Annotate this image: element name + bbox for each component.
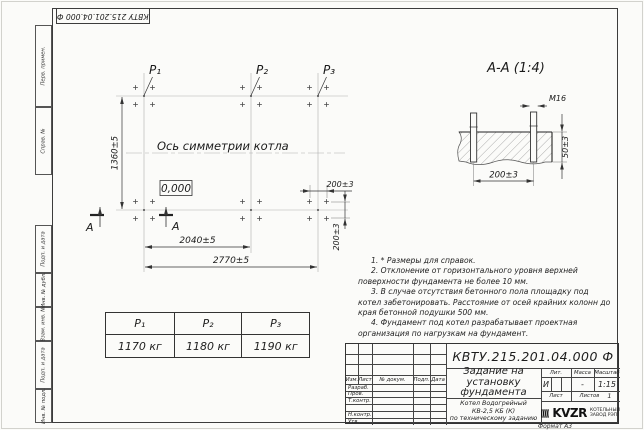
mass-label: Масса (571, 368, 594, 377)
document-designation: КВТУ.215.201.04.000 Ф (446, 344, 620, 368)
title-block: Изм. Лист № докум. Подп. Дата Разраб. Пр… (345, 343, 619, 424)
side-field-sprav-no: Справ. № (35, 107, 52, 175)
company-name: KVZR (552, 406, 587, 420)
side-field-vzam-inv: Взам. инв. № (35, 307, 52, 341)
load-table-header-p1: P₁ (106, 313, 174, 335)
note-3: 3. В случае отсутствия бетонного пола пл… (358, 287, 614, 318)
sheets-label: Листов (580, 393, 600, 399)
lit-value: И (541, 377, 551, 391)
company-subtitle: КОТЕЛЬНЫЙ ЗАВОД РЭП (590, 408, 620, 418)
corner-designation-text: КВТУ 215.201.04.000 Ф (57, 12, 149, 21)
company-cell: KVZR КОТЕЛЬНЫЙ ЗАВОД РЭП (541, 401, 620, 425)
sheet-label: Лист (541, 391, 571, 401)
document-title: Задание на установку фундамента (446, 368, 541, 398)
sheets-value: 1 (607, 392, 611, 400)
side-field-inv-podl: Инв. № подл. (35, 389, 52, 423)
sheets-cell: Листов 1 (571, 391, 620, 401)
row-razrab: Разраб. (346, 384, 372, 391)
load-table-header-p3: P₃ (241, 313, 309, 335)
side-field-inv-dubl: Инв. № дубл. (35, 273, 52, 307)
side-field-perv-primen: Перв. примен. (35, 25, 52, 107)
col-dokum: № докум. (372, 375, 413, 384)
side-field-podp-data-1: Подп. и дата (35, 225, 52, 273)
load-table-value-p3: 1190 кг (241, 335, 309, 357)
note-4: 4. Фундамент под котел разрабатывает про… (358, 318, 614, 339)
note-2: 2. Отклонение от горизонтального уровня … (358, 266, 614, 287)
row-utv: Утв. (346, 418, 372, 425)
col-izm: Изм. (346, 375, 358, 384)
col-data: Дата (430, 375, 446, 384)
lit-label: Лит. (541, 368, 571, 377)
company-logo-icon (541, 407, 549, 420)
drawing-sheet: P₁ P₂ P₃ Ось симметрии котла 0,000 1360±… (0, 0, 644, 430)
mass-value: - (571, 377, 594, 391)
load-table-value-p2: 1180 кг (174, 335, 242, 357)
load-table: P₁ P₂ P₃ 1170 кг 1180 кг 1190 кг (105, 312, 310, 358)
col-podp: Подп. (413, 375, 430, 384)
col-list: Лист (358, 375, 372, 384)
scale-label: Масштаб (594, 368, 620, 377)
row-nkontr: Н.контр. (346, 411, 372, 418)
sheet-format: Формат А3 (520, 423, 590, 430)
product-name: Котел Водогрейный КВ-2,5 КБ (К) по техни… (446, 398, 541, 425)
note-1: 1. * Размеры для справок. (358, 256, 614, 266)
row-tkontr: Т.контр. (346, 397, 372, 404)
load-table-header-p2: P₂ (174, 313, 242, 335)
row-blank (346, 404, 372, 411)
side-field-podp-data-2: Подп. и дата (35, 341, 52, 389)
load-table-value-p1: 1170 кг (106, 335, 174, 357)
corner-designation-stamp: КВТУ 215.201.04.000 Ф (56, 8, 150, 24)
notes-block: 1. * Размеры для справок. 2. Отклонение … (358, 256, 614, 339)
scale-value: 1:15 (594, 377, 620, 391)
